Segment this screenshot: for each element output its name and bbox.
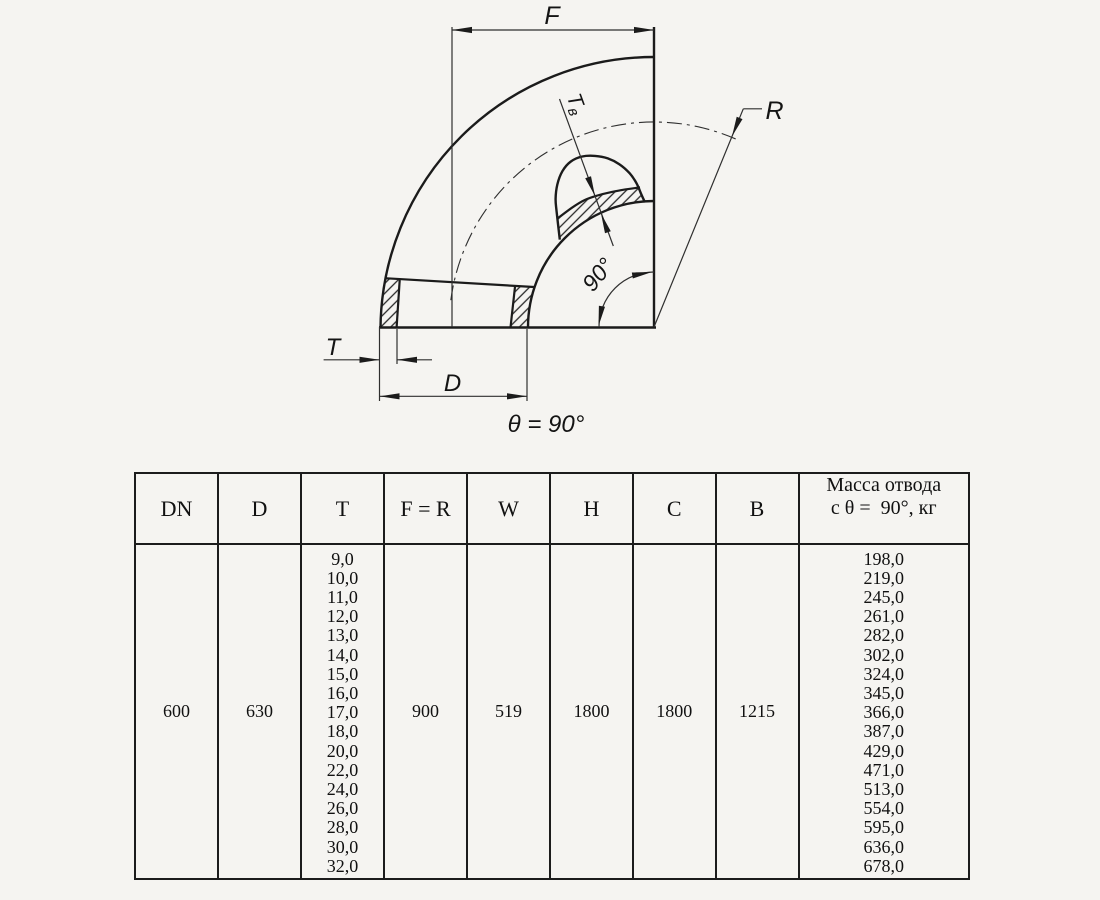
svg-text:90°: 90° (577, 253, 619, 296)
svg-text:T: T (326, 334, 343, 361)
svg-text:Tв: Tв (559, 90, 590, 118)
svg-text:R: R (765, 97, 783, 125)
svg-text:F: F (544, 2, 561, 30)
svg-text:θ = 90°: θ = 90° (508, 411, 585, 438)
svg-text:D: D (444, 370, 461, 397)
